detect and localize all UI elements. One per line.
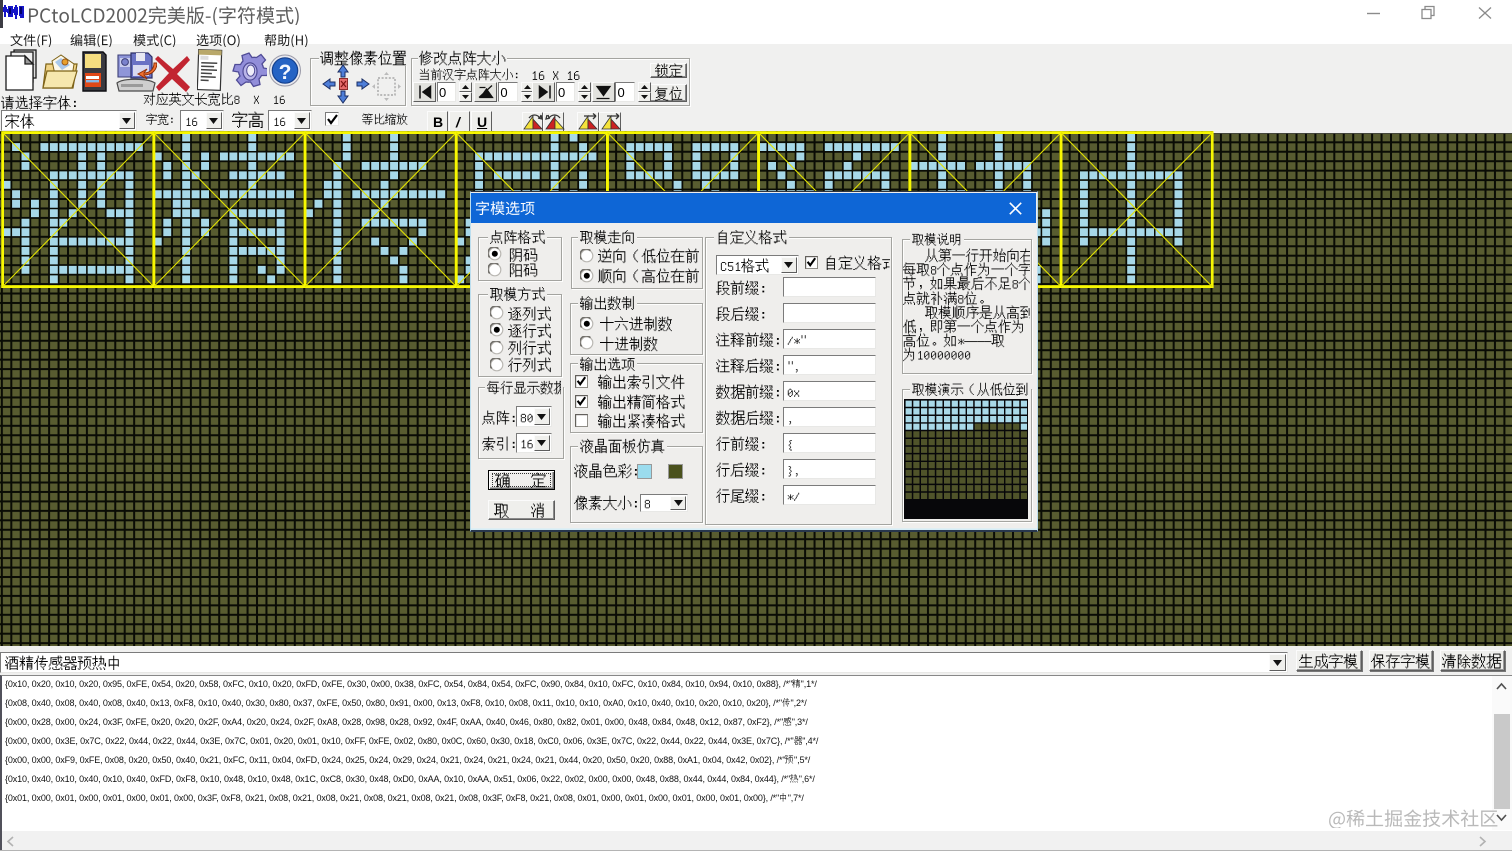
svg-text:?: ?: [279, 61, 292, 84]
